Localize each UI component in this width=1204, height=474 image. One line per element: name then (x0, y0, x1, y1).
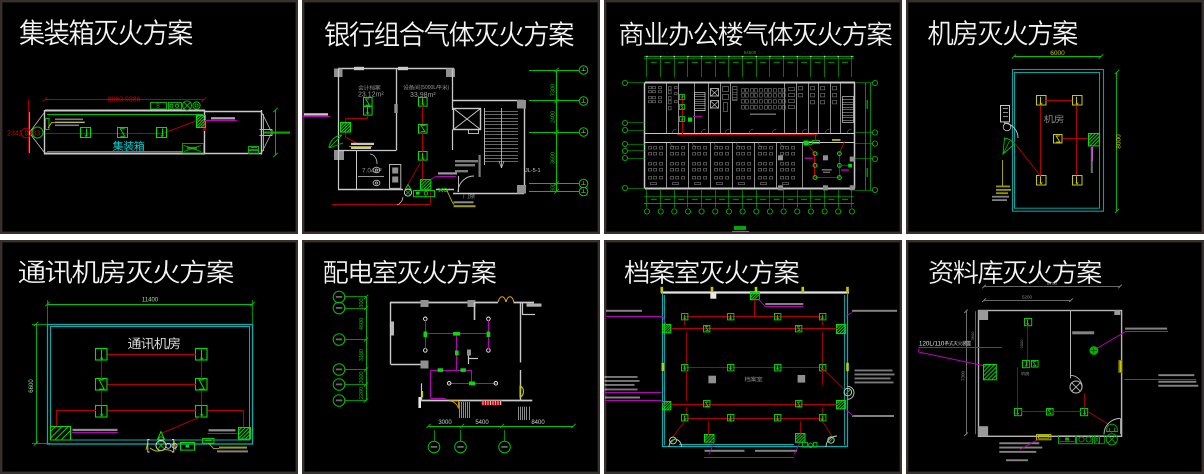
svg-text:2000: 2000 (359, 371, 365, 383)
svg-text:2200: 2200 (359, 387, 365, 399)
svg-text:6600: 6600 (29, 379, 35, 393)
svg-text:3600: 3600 (551, 152, 557, 164)
svg-text:8400: 8400 (531, 420, 545, 426)
svg-text:3600: 3600 (970, 331, 975, 341)
svg-text:300: 300 (359, 298, 365, 307)
svg-text:2400: 2400 (551, 111, 557, 123)
svg-text:3100: 3100 (359, 349, 365, 361)
svg-text:7300: 7300 (551, 84, 557, 96)
svg-text:4600: 4600 (359, 318, 365, 330)
svg-text:11400: 11400 (142, 298, 159, 304)
svg-text:3000: 3000 (438, 420, 452, 426)
svg-text:7.04m²: 7.04m² (362, 168, 382, 175)
svg-text:8000: 8000 (1116, 134, 1123, 149)
svg-text:5200: 5200 (1022, 294, 1033, 299)
svg-text:2341.0683: 2341.0683 (7, 131, 40, 138)
svg-text:120L/110: 120L/110 (919, 340, 945, 347)
svg-text:(5000L/: (5000L/ (421, 85, 439, 91)
svg-text:6000: 6000 (1050, 50, 1065, 57)
svg-text:5400: 5400 (475, 420, 489, 426)
svg-text:2000: 2000 (1019, 339, 1024, 349)
svg-text:54600: 54600 (744, 50, 757, 55)
svg-text:8860.9386: 8860.9386 (107, 97, 140, 104)
svg-text:8700: 8700 (1047, 281, 1058, 286)
svg-text:JL-5-1: JL-5-1 (525, 168, 541, 174)
svg-text:7300: 7300 (960, 370, 965, 381)
